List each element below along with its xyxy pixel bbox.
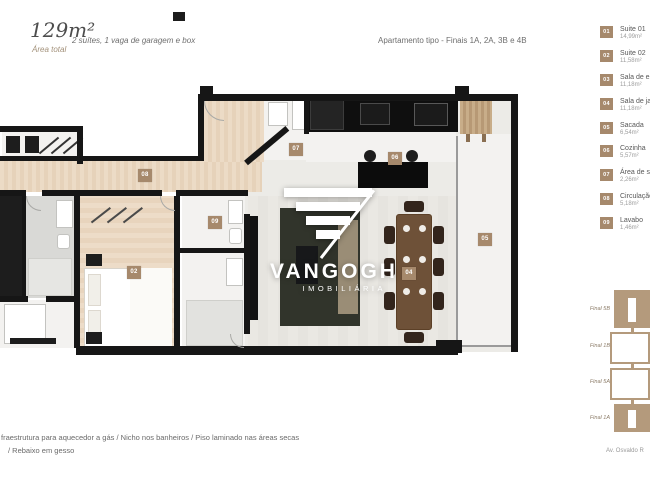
bathroom1-vanity (56, 200, 73, 228)
storage-box (25, 136, 39, 153)
pillow (88, 274, 101, 306)
nightstand (86, 332, 102, 344)
balcony-glass-door (456, 136, 458, 344)
footer-specs-line1: fraestrutura para aquecedor a gás / Nich… (1, 433, 299, 442)
plan-marker-sala-jantar: 04 (402, 267, 416, 280)
powder-room-vanity (228, 200, 243, 224)
legend-number-badge: 03 (600, 74, 613, 86)
legend-room-area: 1,46m² (620, 225, 639, 231)
wall (176, 190, 248, 196)
keyplan-notch (628, 410, 636, 428)
legend-room-area: 11,18m² (620, 106, 642, 112)
legend-number-badge: 06 (600, 145, 613, 157)
floorplan-brochure-page: { "header": { "area_value": "129m²", "ar… (0, 0, 650, 480)
bar-stool (406, 150, 418, 162)
place-setting (419, 225, 426, 232)
keyplan-label-final-1a: Final 1A (558, 415, 610, 421)
corridor-floor (0, 160, 262, 192)
bed-blanket (130, 268, 172, 350)
grill-leg (482, 134, 486, 142)
legend-room-area: 5,18m² (620, 201, 639, 207)
legend-room-label: Lavabo (620, 217, 643, 224)
plan-marker-sacada: 05 (478, 233, 492, 246)
place-setting (403, 225, 410, 232)
grill-unit (460, 98, 492, 134)
plan-marker-lavabo: 09 (208, 216, 222, 229)
wall (0, 126, 82, 132)
nightstand (86, 254, 102, 266)
dining-chair (384, 292, 395, 310)
legend-room-label: Sala de estar (620, 74, 650, 81)
wall (0, 156, 204, 161)
legend-number-badge: 05 (600, 122, 613, 134)
logo-mark-fragment (173, 12, 185, 21)
unit-type-text: Apartamento tipo - Finais 1A, 2A, 3B e 4… (378, 36, 527, 45)
wall (76, 346, 458, 355)
dining-chair (433, 226, 444, 244)
wall (46, 296, 78, 302)
washing-machine (268, 102, 288, 126)
watermark-brand: VANGOGH (270, 260, 386, 284)
legend-room-label: Cozinha (620, 145, 646, 152)
keyplan-unit-5a (610, 368, 650, 400)
legend-number-badge: 01 (600, 26, 613, 38)
watermark: VANGOGH IMOBILIÁRIA (270, 188, 386, 293)
wall (244, 250, 250, 334)
keyplan-unit-1b (610, 332, 650, 364)
wall (42, 190, 162, 196)
place-setting (403, 288, 410, 295)
legend-room-label: Circulação (620, 193, 650, 200)
wall (198, 94, 204, 160)
storage-box (6, 136, 20, 153)
toilet (229, 228, 242, 244)
wall (304, 94, 309, 134)
wall (180, 248, 248, 253)
wall (74, 196, 80, 348)
legend-room-area: 14,99m² (620, 34, 642, 40)
wardrobe-block (0, 196, 23, 298)
wall (0, 296, 28, 302)
plan-marker-suite2: 02 (127, 266, 141, 279)
kitchen-island (358, 162, 428, 188)
bench (10, 338, 56, 344)
wall-stub (200, 86, 213, 94)
plan-marker-circulacao: 08 (138, 169, 152, 182)
dining-chair (433, 258, 444, 276)
unit-features-text: 2 suítes, 1 vaga de garagem e box (72, 36, 195, 45)
wall (22, 196, 26, 298)
kitchen-cabinet (310, 100, 344, 130)
place-setting (403, 256, 410, 263)
shower-stall (28, 258, 72, 296)
wall-stub (455, 86, 469, 94)
legend-number-badge: 07 (600, 169, 613, 181)
watermark-tagline: IMOBILIÁRIA (270, 284, 386, 293)
legend-number-badge: 08 (600, 193, 613, 205)
legend-room-area: 11,18m² (620, 82, 642, 88)
wall (174, 196, 180, 348)
dining-chair (433, 292, 444, 310)
legend-room-label: Suite 01 (620, 26, 646, 33)
kitchen-sink (414, 103, 448, 126)
place-setting (419, 288, 426, 295)
vangogh-logo-icon (270, 188, 386, 260)
balcony-rail (458, 345, 514, 347)
keyplan-label-final-1b: Final 1B (558, 343, 610, 349)
wall (244, 214, 250, 250)
legend-number-badge: 04 (600, 98, 613, 110)
dining-chair (404, 332, 424, 343)
grill-leg (466, 134, 470, 142)
bar-stool (364, 150, 376, 162)
bathroom2-vanity (226, 258, 243, 286)
legend-room-area: 11,58m² (620, 58, 642, 64)
footer-specs-line2: / Rebaixo em gesso (8, 446, 74, 455)
legend-room-area: 5,57m² (620, 153, 639, 159)
wall (200, 94, 518, 101)
legend-room-area: 2,26m² (620, 177, 639, 183)
plan-marker-cozinha: 06 (388, 152, 402, 165)
dining-chair (404, 201, 424, 212)
keyplan-label-final-5b: Final 5B (558, 306, 610, 312)
legend-room-area: 6,54m² (620, 130, 639, 136)
legend-number-badge: 02 (600, 50, 613, 62)
footer-address: Av. Osvaldo R (606, 448, 644, 454)
cooktop (360, 103, 390, 125)
place-setting (419, 256, 426, 263)
legend-room-label: Sala de jantar (620, 98, 650, 105)
legend-number-badge: 09 (600, 217, 613, 229)
plan-marker-area-servico: 07 (289, 143, 303, 156)
legend-room-label: Sacada (620, 122, 644, 129)
keyplan-notch (628, 298, 636, 322)
keyplan-label-final-5a: Final 5A (558, 379, 610, 385)
wall-pier (436, 340, 462, 353)
wall (511, 94, 518, 352)
total-area-label: Área total (32, 45, 66, 54)
toilet (57, 234, 70, 249)
legend-room-label: Suite 02 (620, 50, 646, 57)
legend-room-label: Área de serviço (620, 169, 650, 176)
